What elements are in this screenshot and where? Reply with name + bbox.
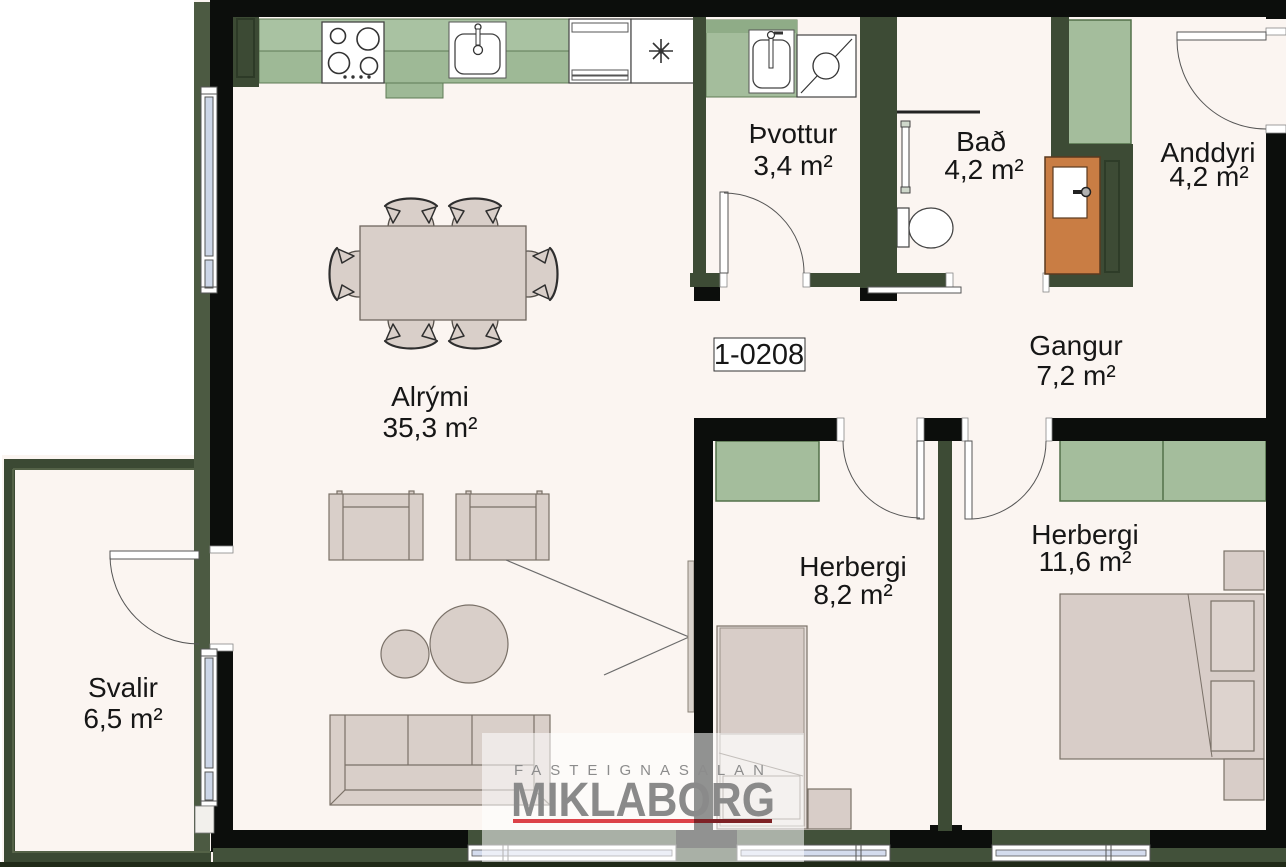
svg-text:8,2 m²: 8,2 m² [813, 579, 892, 610]
svg-text:Gangur: Gangur [1029, 330, 1122, 361]
svg-text:Bað: Bað [956, 126, 1006, 157]
svg-text:1-0208: 1-0208 [714, 339, 804, 371]
svg-text:3,4 m²: 3,4 m² [753, 150, 832, 181]
svg-text:35,3 m²: 35,3 m² [383, 412, 478, 443]
svg-text:11,6 m²: 11,6 m² [1039, 546, 1132, 577]
svg-text:Svalir: Svalir [88, 672, 158, 703]
svg-text:4,2 m²: 4,2 m² [944, 154, 1023, 185]
svg-text:Þvottur: Þvottur [749, 118, 838, 149]
svg-text:7,2 m²: 7,2 m² [1036, 360, 1115, 391]
svg-text:6,5 m²: 6,5 m² [83, 703, 162, 734]
svg-text:4,2 m²: 4,2 m² [1169, 161, 1248, 192]
svg-text:Alrými: Alrými [391, 381, 469, 412]
svg-text:Herbergi: Herbergi [799, 551, 906, 582]
